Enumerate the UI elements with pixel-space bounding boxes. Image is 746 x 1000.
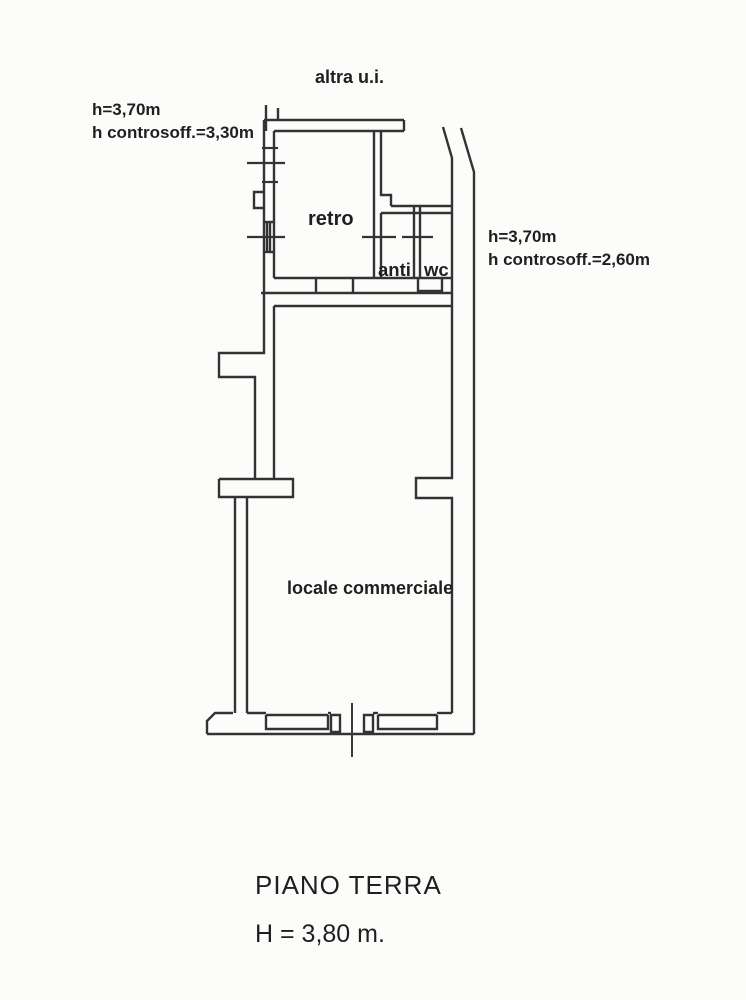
room-label-wc: wc (423, 259, 449, 280)
scanned-floor-plan-page: altra u.i. h=3,70m h controsoff.=3,30m h… (0, 0, 746, 1000)
left-height-annotation-line1: h=3,70m (92, 100, 161, 119)
room-label-retro: retro (308, 208, 354, 230)
floor-plan-drawing: altra u.i. h=3,70m h controsoff.=3,30m h… (0, 0, 746, 1000)
room-label-anti: anti (378, 259, 411, 280)
main-room-walls (261, 127, 474, 734)
altra-ui-label: altra u.i. (315, 67, 384, 87)
top-wall (264, 105, 404, 131)
room-label-locale-commerciale: locale commerciale (287, 578, 453, 598)
right-height-annotation-line2: h controsoff.=2,60m (488, 250, 650, 269)
floor-height: H = 3,80 m. (255, 920, 385, 948)
left-wall (219, 120, 293, 713)
floor-title: PIANO TERRA (255, 870, 442, 900)
left-height-annotation-line2: h controsoff.=3,30m (92, 123, 254, 142)
right-height-annotation-line1: h=3,70m (488, 227, 557, 246)
